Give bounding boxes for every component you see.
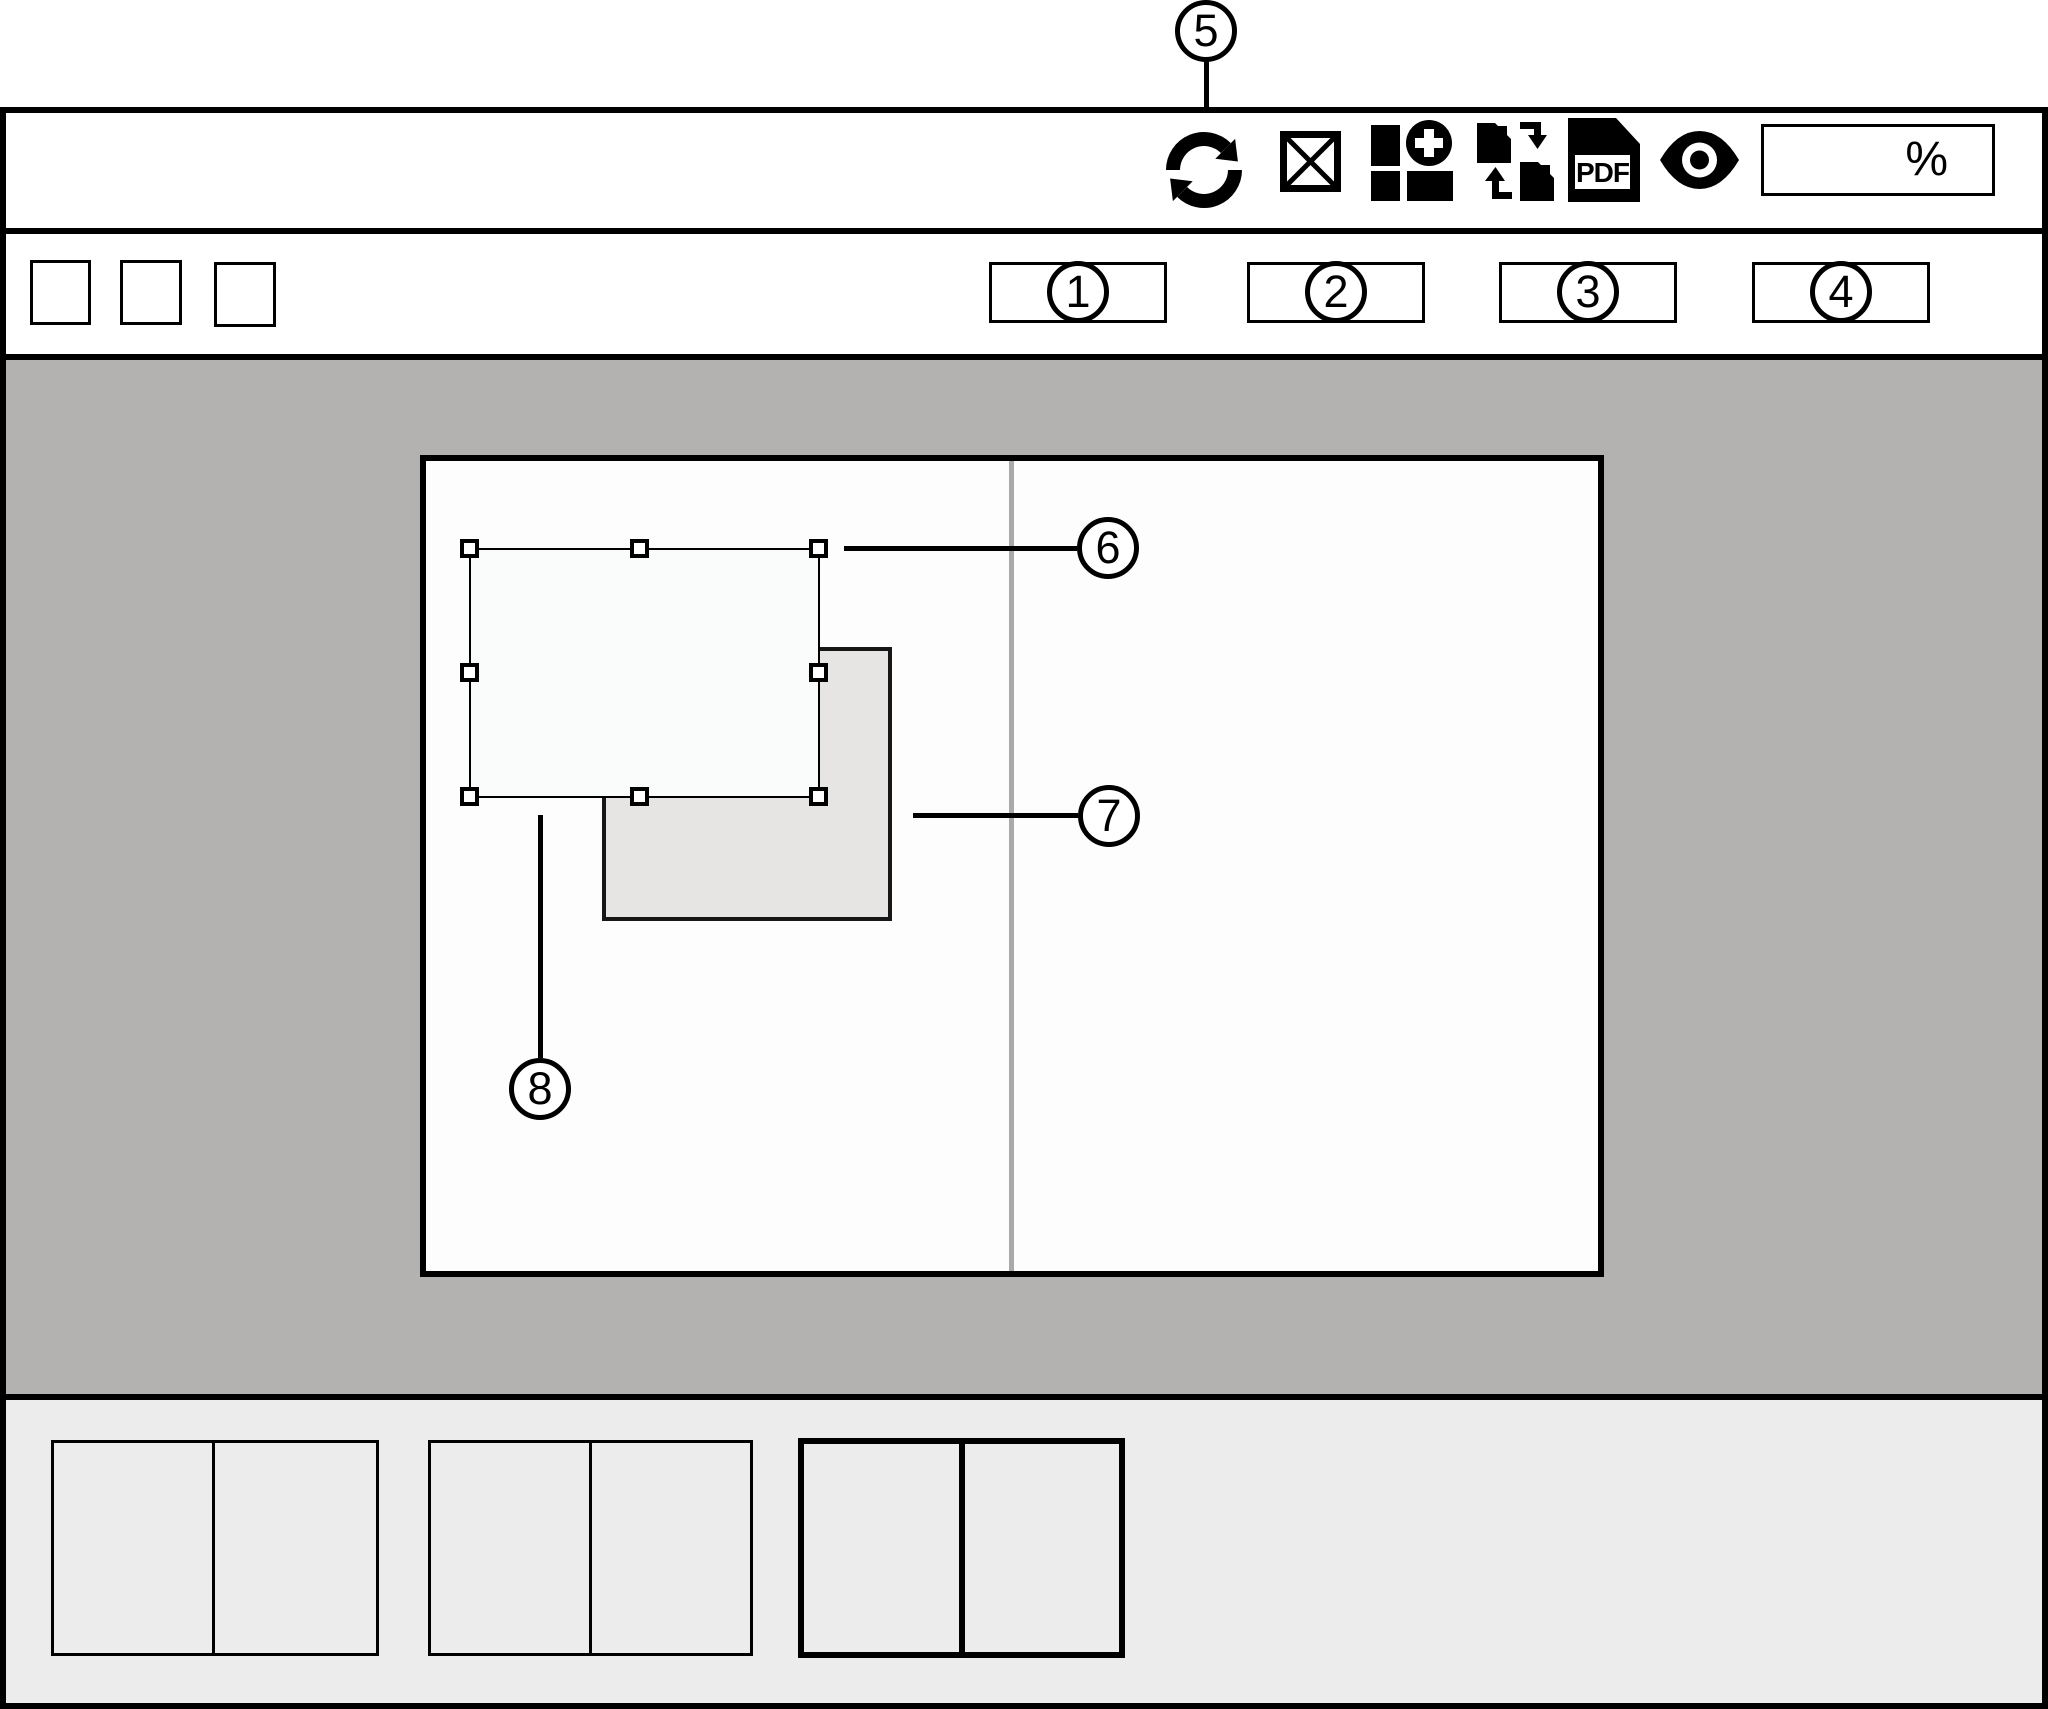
svg-text:PDF: PDF — [1576, 157, 1630, 188]
